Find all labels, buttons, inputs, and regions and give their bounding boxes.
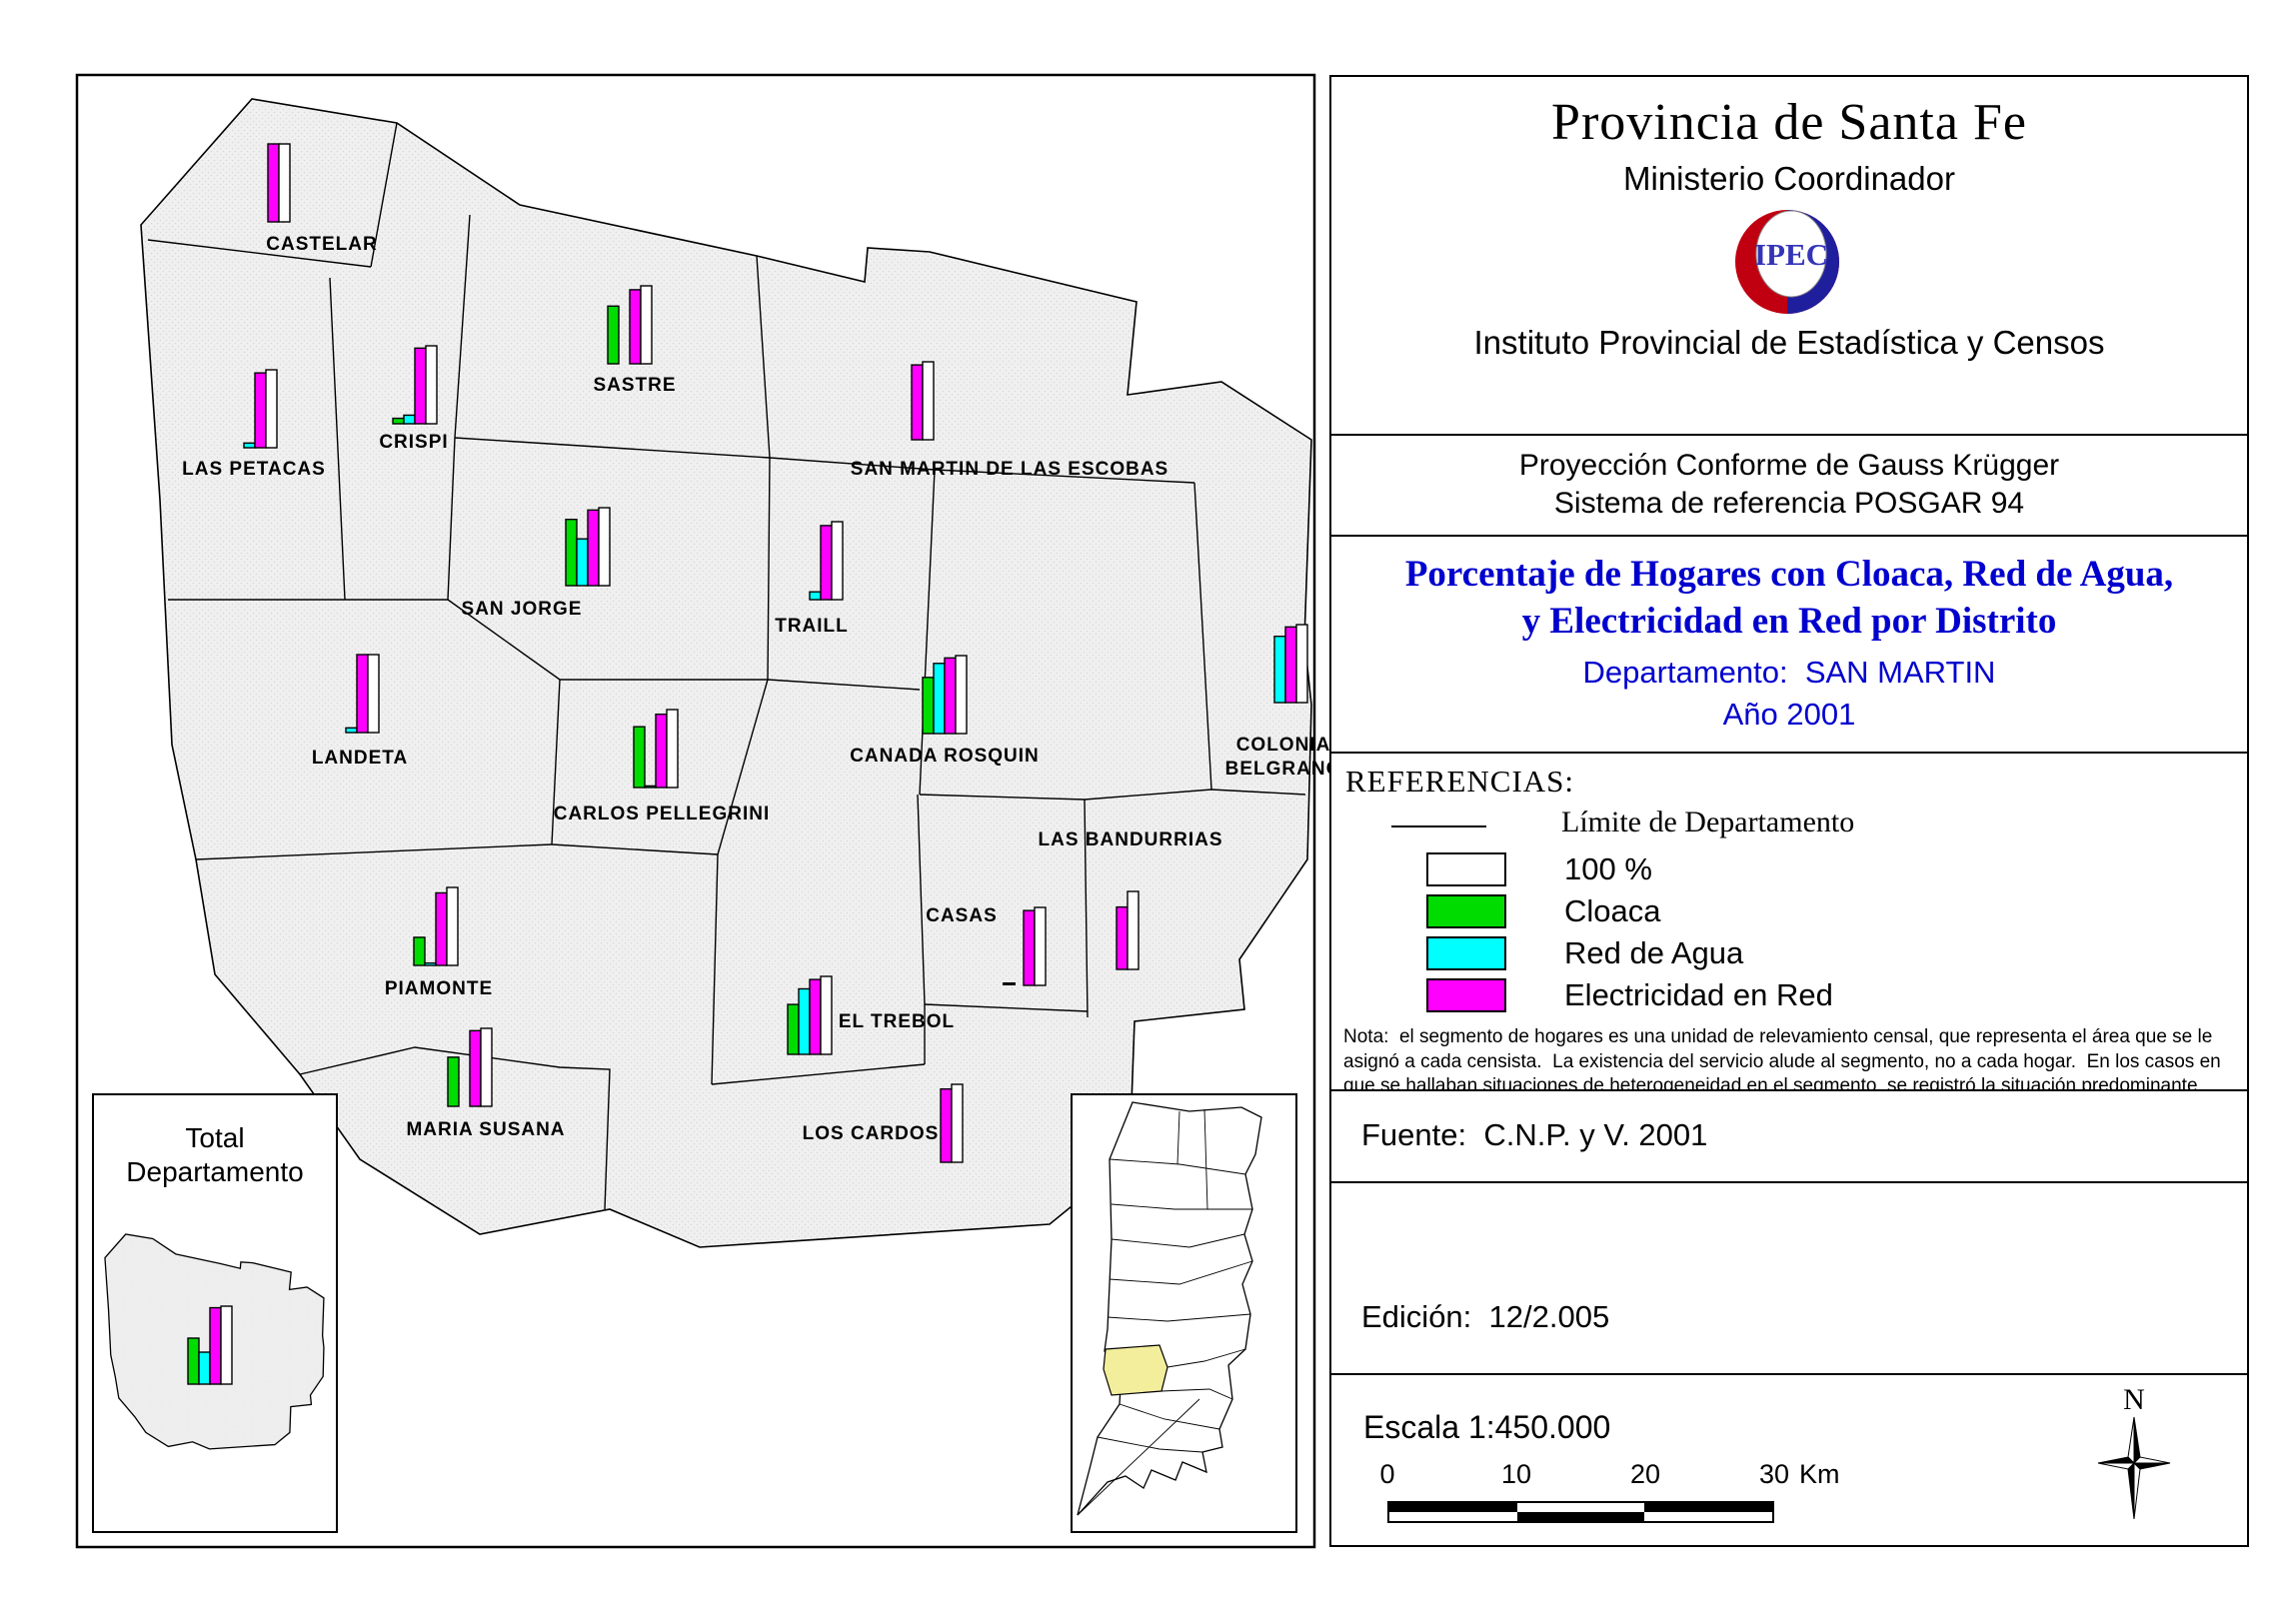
district-label-san-martin-de-las-escobas: SAN MARTIN DE LAS ESCOBAS [851, 459, 1168, 480]
references-section: REFERENCIAS: Límite de Departamento 100 … [1331, 752, 2247, 1089]
district-chart-san-martin-de-las-escobas [912, 362, 934, 440]
legend-row-1: Cloaca [1331, 891, 2247, 933]
locator-highlight-san-martin [1104, 1345, 1167, 1395]
district-label-castelar: CASTELAR [266, 234, 377, 255]
scale-tick-30: 30 [1744, 1459, 1804, 1490]
legend-row-2: Red de Agua [1331, 933, 2247, 975]
page: CASTELARLAS PETACASCRISPISASTRESAN MARTI… [0, 0, 2296, 1624]
district-chart-colonia-belgrano [1274, 625, 1307, 703]
panel-header: Provincia de Santa Fe Ministerio Coordin… [1331, 77, 2247, 434]
district-chart-castelar [268, 144, 290, 222]
total-departamento-inset: TotalDepartamento [93, 1094, 337, 1532]
scale-bar-segments [1387, 1501, 1774, 1523]
map-title-line2: y Electricidad en Red por Distrito [1331, 598, 2247, 645]
legend-swatch-3 [1426, 978, 1506, 1012]
boundary-line-symbol [1391, 825, 1486, 827]
district-label-landeta: LANDETA [312, 748, 408, 769]
ministry-subtitle: Ministerio Coordinador [1331, 160, 2247, 198]
district-label-san-jorge: SAN JORGE [462, 599, 583, 620]
projection-line2: Sistema de referencia POSGAR 94 [1331, 485, 2247, 523]
province-locator-inset [1072, 1094, 1296, 1532]
department-map: CASTELARLAS PETACASCRISPISASTRESAN MARTI… [0, 0, 1329, 1624]
district-label-traill: TRAILL [775, 616, 849, 637]
projection-info: Proyección Conforme de Gauss Krügger Sis… [1331, 434, 2247, 535]
scale-unit: Km [1799, 1459, 1840, 1490]
district-label-sastre: SASTRE [593, 375, 676, 396]
boundary-line-label: Límite de Departamento [1561, 806, 1854, 839]
district-label-crispi: CRISPI [379, 432, 448, 453]
ipec-logo: IPEC [1331, 206, 2247, 318]
district-chart-san-jorge [566, 508, 610, 586]
scale-bar: 0 10 20 30 Km [1387, 1495, 1887, 1535]
department-name: Departamento: SAN MARTIN [1331, 653, 2247, 693]
scale-tick-20: 20 [1615, 1459, 1675, 1490]
edition-date: Edición: 12/2.005 [1361, 1297, 2247, 1337]
district-label-carlos-pellegrini: CARLOS PELLEGRINI [554, 804, 771, 824]
district-label-los-cardos: LOS CARDOS [803, 1123, 940, 1144]
district-label-el-trebol: EL TREBOL [839, 1011, 955, 1032]
district-label-casas: CASAS [926, 905, 998, 926]
legend-row-0: 100 % [1331, 849, 2247, 891]
legend-swatch-2 [1426, 936, 1506, 970]
compass-rose-icon: N [2069, 1381, 2199, 1541]
legend-row-3: Electricidad en Red [1331, 975, 2247, 1017]
legend-label-1: Cloaca [1564, 893, 1661, 929]
district-label-las-bandurrias: LAS BANDURRIAS [1039, 829, 1223, 850]
references-heading: REFERENCIAS: [1345, 764, 1574, 800]
map-title-line1: Porcentaje de Hogares con Cloaca, Red de… [1331, 551, 2247, 598]
legend: 100 %CloacaRed de AguaElectricidad en Re… [1331, 849, 2247, 1017]
district-label-maria-susana: MARIA SUSANA [406, 1119, 565, 1140]
source-text: Fuente: C.N.P. y V. 2001 [1331, 1091, 2247, 1153]
ipec-logo-icon: IPEC [1725, 206, 1853, 318]
scale-section: Escala 1:450.000 0 10 20 30 Km N [1331, 1373, 2247, 1547]
scale-tick-10: 10 [1486, 1459, 1546, 1490]
note-text: Nota: el segmento de hogares es una unid… [1343, 1025, 2245, 1089]
ipec-logo-text: IPEC [1754, 237, 1828, 272]
projection-line1: Proyección Conforme de Gauss Krügger [1331, 447, 2247, 485]
legend-swatch-1 [1426, 894, 1506, 928]
district-label-piamonte: PIAMONTE [385, 978, 493, 999]
institute-name: Instituto Provincial de Estadística y Ce… [1331, 324, 2247, 362]
map-title-block: Porcentaje de Hogares con Cloaca, Red de… [1331, 535, 2247, 752]
district-chart-los-cardos [941, 1084, 963, 1162]
district-label-las-petacas: LAS PETACAS [182, 459, 326, 480]
map-year: Año 2001 [1331, 695, 2247, 735]
compass-north-label: N [2123, 1383, 2145, 1416]
scale-tick-0: 0 [1357, 1459, 1417, 1490]
legend-label-3: Electricidad en Red [1564, 977, 1833, 1013]
source-section: Fuente: C.N.P. y V. 2001 [1331, 1089, 2247, 1181]
scale-label: Escala 1:450.000 [1363, 1409, 1610, 1446]
info-panel: Provincia de Santa Fe Ministerio Coordin… [1329, 75, 2249, 1547]
edition-section: Edición: 12/2.005 Actualización: 07/2.00… [1331, 1181, 2247, 1373]
legend-label-2: Red de Agua [1564, 935, 1743, 971]
legend-swatch-0 [1426, 852, 1506, 886]
legend-label-0: 100 % [1564, 851, 1652, 887]
province-title: Provincia de Santa Fe [1331, 93, 2247, 152]
district-label-canada-rosquin: CANADA ROSQUIN [850, 746, 1040, 767]
